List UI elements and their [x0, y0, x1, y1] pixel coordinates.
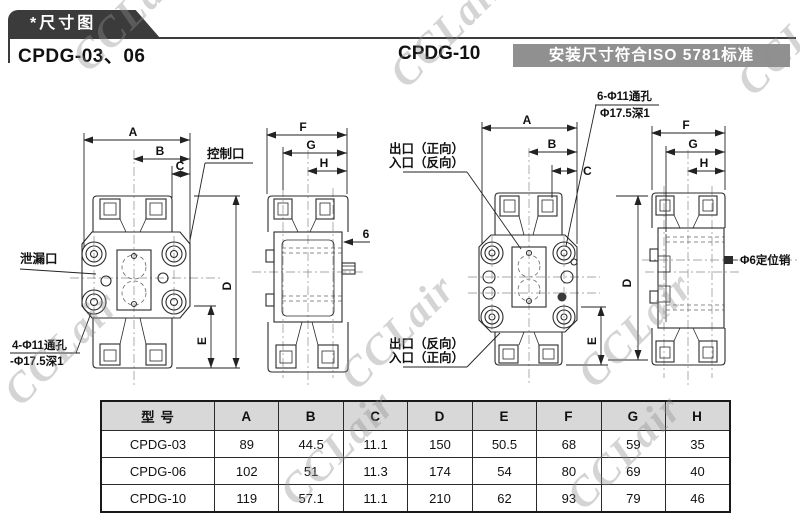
value-cell: 35 [666, 431, 730, 458]
value-cell: 174 [408, 458, 472, 485]
section-tab-label: *尺寸图 [8, 10, 160, 38]
leak-port-label: 泄漏口 [20, 251, 58, 266]
dim-h2: H [700, 156, 709, 170]
dim-d1: D [220, 281, 234, 290]
value-cell: 54 [472, 458, 536, 485]
control-port-label: 控制口 [207, 146, 245, 161]
view-cpdg0306-front: A B C D E 控制口 泄漏口 4-Φ11通孔 -Φ17.5深1 [10, 125, 253, 385]
dim-a1: A [129, 125, 138, 139]
header-left-tick [8, 37, 10, 63]
value-cell: 102 [215, 458, 279, 485]
value-cell: 51 [279, 458, 343, 485]
locating-pin-label: Φ6定位销 [740, 253, 791, 267]
dim-b2: B [548, 137, 557, 151]
table-header-cell: D [408, 401, 472, 431]
iso-standard-badge: 安装尺寸符合ISO 5781标准 [513, 44, 790, 67]
table-header-cell: G [601, 401, 665, 431]
model-heading-left: CPDG-03、06 [18, 41, 146, 68]
table-row: CPDG-061025111.317454806940 [101, 458, 730, 485]
dim-g2: G [688, 137, 697, 151]
holes-note-2: -Φ17.5深1 [10, 354, 64, 368]
view-cpdg10-front: A B C E 出口（正向） 入口（反向） 出口（反向） 入口（正向） 6-Φ1… [389, 90, 659, 385]
value-cell: 44.5 [279, 431, 343, 458]
value-cell: 79 [601, 485, 665, 513]
table-row: CPDG-038944.511.115050.5685935 [101, 431, 730, 458]
table-header-cell: E [472, 401, 536, 431]
model-cell: CPDG-10 [101, 485, 215, 513]
value-cell: 119 [215, 485, 279, 513]
value-cell: 89 [215, 431, 279, 458]
model-cell: CPDG-03 [101, 431, 215, 458]
table-row: CPDG-1011957.111.121062937946 [101, 485, 730, 513]
dim-d2: D [620, 278, 634, 287]
model-heading-right: CPDG-10 [398, 43, 480, 65]
value-cell: 59 [601, 431, 665, 458]
value-cell: 50.5 [472, 431, 536, 458]
view-cpdg10-side: F G H D Φ6定位销 [608, 118, 797, 385]
value-cell: 40 [666, 458, 730, 485]
port-top-line1: 出口（正向） [389, 141, 464, 156]
table-header-cell: A [215, 401, 279, 431]
port-bottom-line1: 出口（反向） [389, 336, 464, 351]
view-cpdg0306-side: F G H 6 [252, 120, 370, 385]
dim-h1: H [320, 156, 329, 170]
value-cell: 57.1 [279, 485, 343, 513]
table-header-cell: H [666, 401, 730, 431]
header-rule [8, 37, 796, 39]
port-top-line2: 入口（反向） [389, 155, 464, 170]
dim-g1: G [306, 138, 315, 152]
value-cell: 46 [666, 485, 730, 513]
value-cell: 80 [537, 458, 601, 485]
holes-note-4: Φ17.5深1 [600, 106, 650, 120]
dim-f1: F [299, 120, 306, 134]
dim-b1: B [156, 144, 165, 158]
table-header-cell: B [279, 401, 343, 431]
dimension-table: 型 号ABCDEFGHCPDG-038944.511.115050.568593… [100, 400, 731, 513]
table-header-cell: F [537, 401, 601, 431]
port-bottom-line2: 入口（正向） [389, 350, 464, 365]
value-cell: 11.1 [343, 431, 407, 458]
dim-f2: F [682, 118, 689, 132]
value-cell: 93 [537, 485, 601, 513]
value-cell: 68 [537, 431, 601, 458]
dim-e1: E [195, 337, 209, 345]
catalog-page: *尺寸图 CPDG-03、06 CPDG-10 安装尺寸符合ISO 5781标准 [0, 0, 800, 520]
holes-note-1: 4-Φ11通孔 [12, 339, 67, 352]
holes-note-3: 6-Φ11通孔 [597, 90, 652, 103]
value-cell: 69 [601, 458, 665, 485]
table-header-cell: 型 号 [101, 401, 215, 431]
model-cell: CPDG-06 [101, 458, 215, 485]
dim-c2: C [583, 164, 592, 178]
section-tab: *尺寸图 [8, 10, 160, 38]
value-cell: 150 [408, 431, 472, 458]
value-cell: 62 [472, 485, 536, 513]
dim-six: 6 [363, 227, 370, 241]
dim-c1: C [176, 159, 185, 173]
value-cell: 11.3 [343, 458, 407, 485]
value-cell: 11.1 [343, 485, 407, 513]
dim-a2: A [523, 113, 532, 127]
dim-e2: E [585, 337, 599, 345]
value-cell: 210 [408, 485, 472, 513]
table-header-cell: C [343, 401, 407, 431]
